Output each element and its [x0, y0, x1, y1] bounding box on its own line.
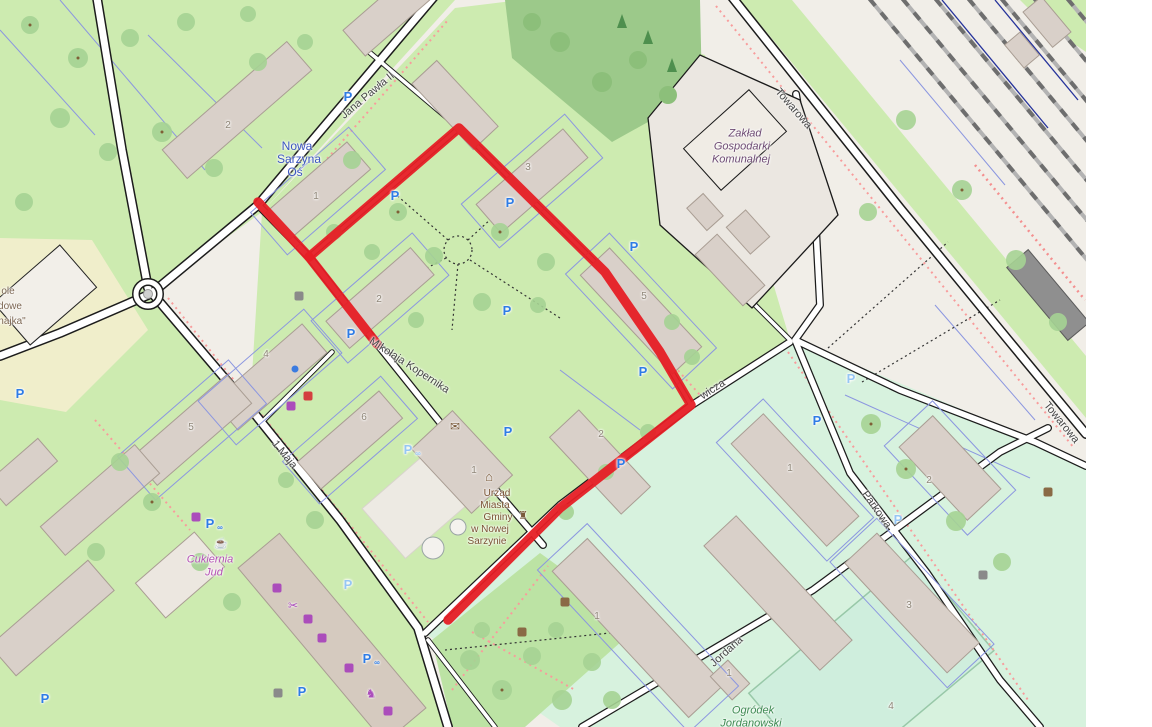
map-canvas[interactable]: Jana Pawła IITowarowaTowarowa1 MajaMikoł…	[0, 0, 1152, 727]
map-base-graphics	[0, 0, 1152, 727]
unloaded-tile-area	[1086, 0, 1152, 727]
roundabout	[136, 282, 160, 306]
